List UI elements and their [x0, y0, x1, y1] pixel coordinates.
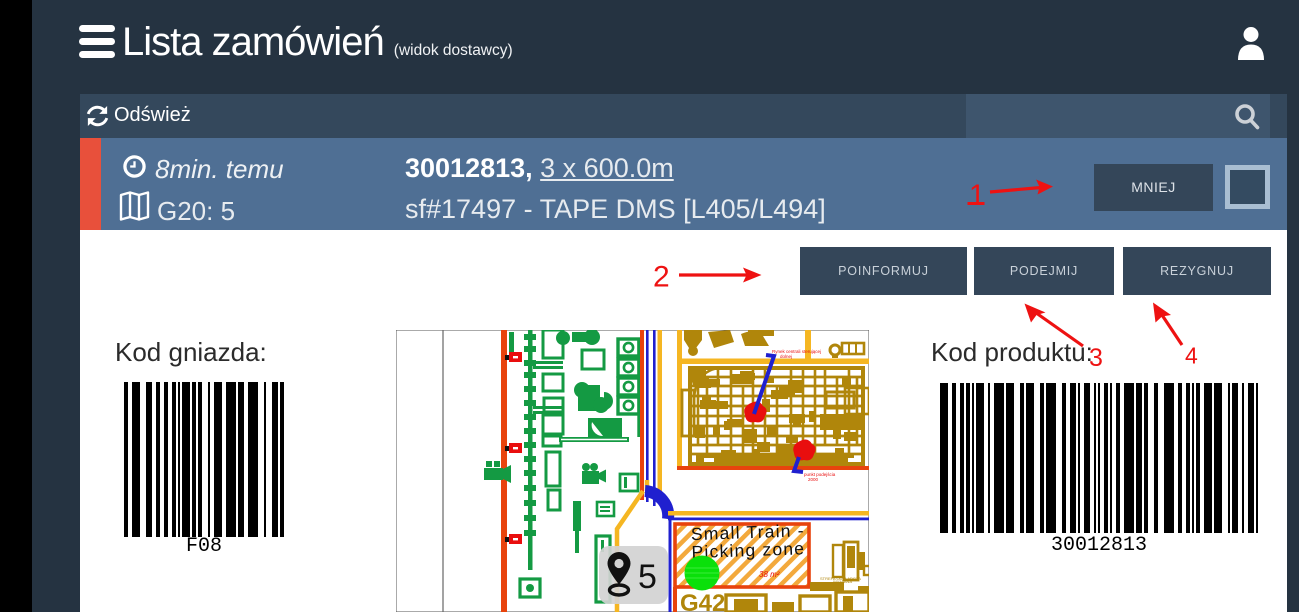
- svg-text:1: 1: [969, 180, 985, 212]
- svg-text:2000: 2000: [808, 477, 819, 482]
- svg-text:G42: G42: [680, 590, 725, 612]
- svg-text:5: 5: [638, 558, 657, 596]
- svg-text:38 m²: 38 m²: [759, 570, 780, 579]
- svg-text:dolnej: dolnej: [780, 354, 792, 359]
- svg-text:STREFA ODKLADCZA: STREFA ODKLADCZA: [820, 576, 861, 581]
- svg-text:4: 4: [1185, 343, 1198, 369]
- svg-text:2: 2: [653, 261, 670, 294]
